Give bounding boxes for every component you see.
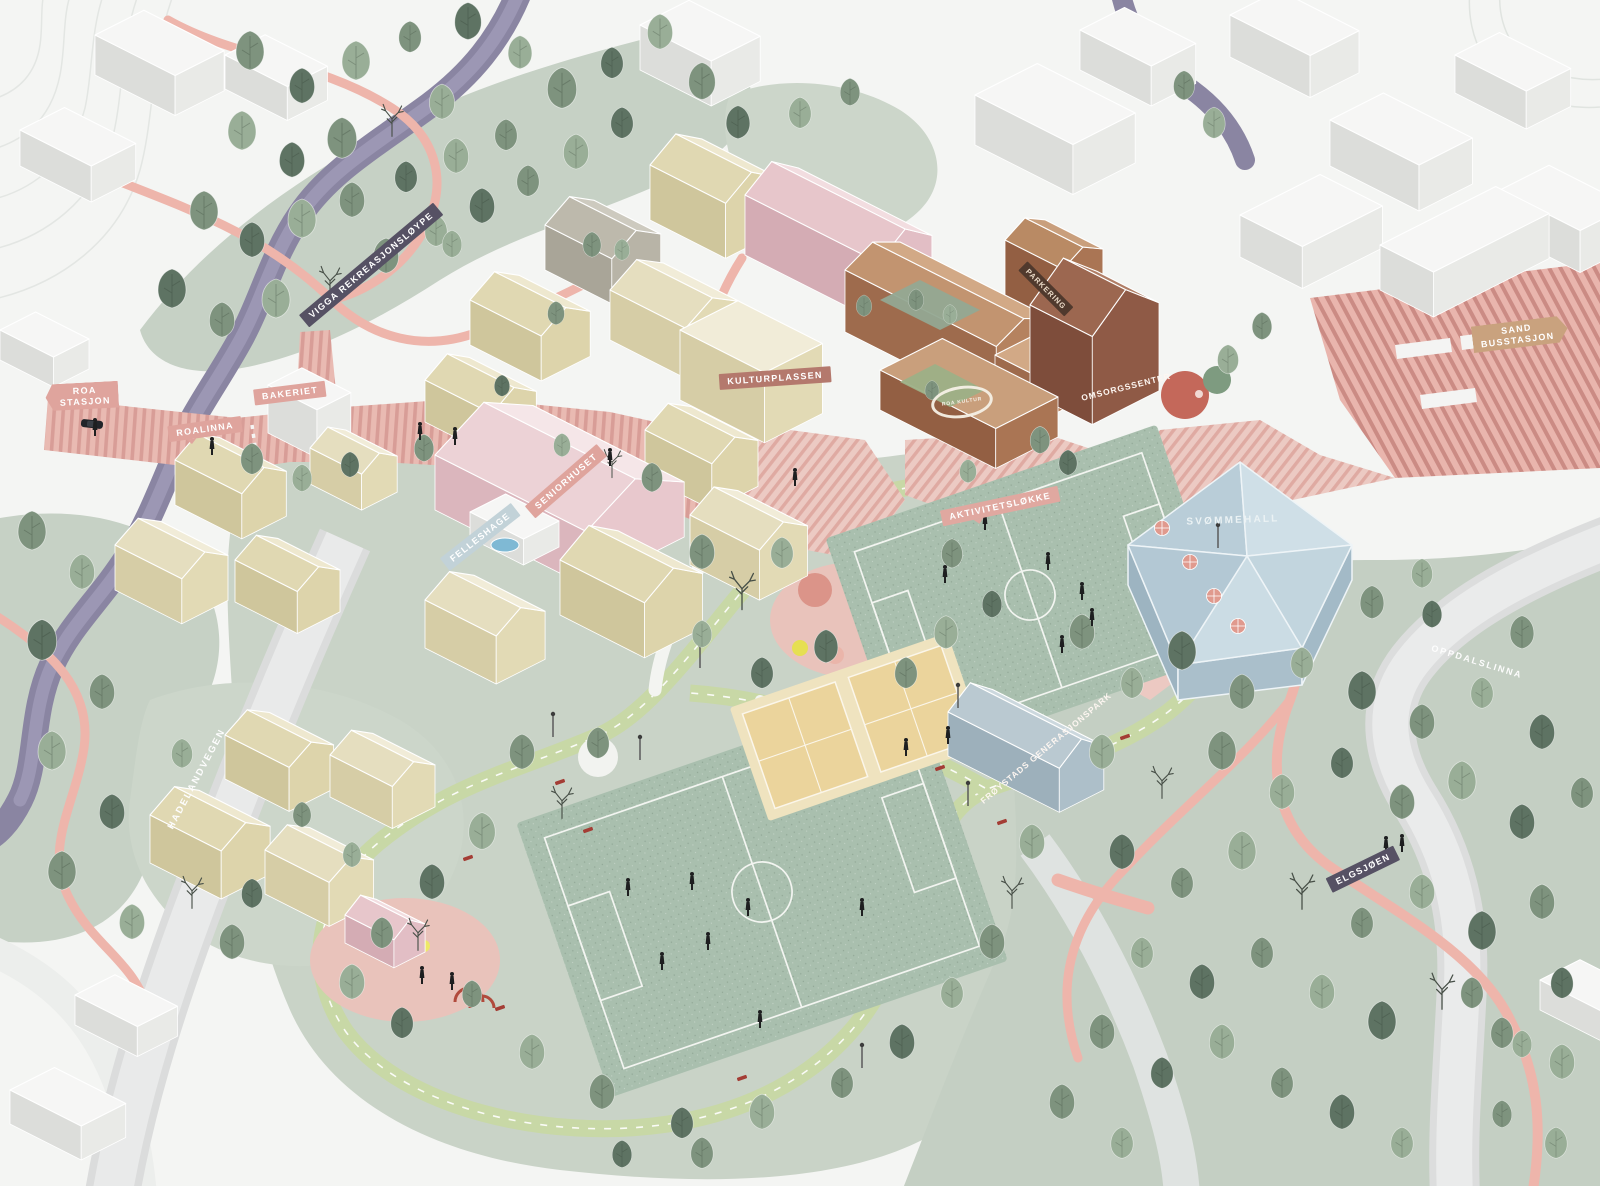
label-kulturplassen: KULTURPLASSEN xyxy=(719,366,832,390)
label-svommehall: SVØMMEHALL xyxy=(1186,513,1279,528)
label-parkering: PARKERING xyxy=(1018,261,1073,316)
label-aktivitetslokke: AKTIVITETSLØKKE xyxy=(940,486,1060,526)
label-roalinna: ROALINNA xyxy=(167,416,242,442)
label-seniorhuset: SENIORHUSET xyxy=(525,444,607,518)
label-sand-busstasjon: SAND BUSSTASJON xyxy=(1471,315,1569,353)
label-elgsjoen: ELGSJØEN xyxy=(1326,845,1401,892)
label-oppdalslinna: OPPDALSLINNA xyxy=(1430,643,1524,681)
masterplan-illustration: VIGGA REKREASJONSLØYPE ROA STASJON ROALI… xyxy=(0,0,1600,1186)
roof-ring-sign: ROA KULTUR xyxy=(929,382,995,422)
label-layer: VIGGA REKREASJONSLØYPE ROA STASJON ROALI… xyxy=(0,0,1600,1186)
label-hadelandvegen: HADELANDVEGEN xyxy=(166,727,229,832)
label-roa-stasjon: ROA STASJON xyxy=(45,381,119,411)
label-bakeriet: BAKERIET xyxy=(253,381,327,406)
label-omsorgssenter: OMSORGSSENTER xyxy=(1080,371,1172,403)
label-vigga-rekreasjonsloype: VIGGA REKREASJONSLØYPE xyxy=(299,203,443,327)
label-felleshage: FELLESHAGE xyxy=(440,503,520,571)
label-froystads-generasjonspark: FRØYSTADS GENERASJONSPARK xyxy=(978,690,1113,806)
